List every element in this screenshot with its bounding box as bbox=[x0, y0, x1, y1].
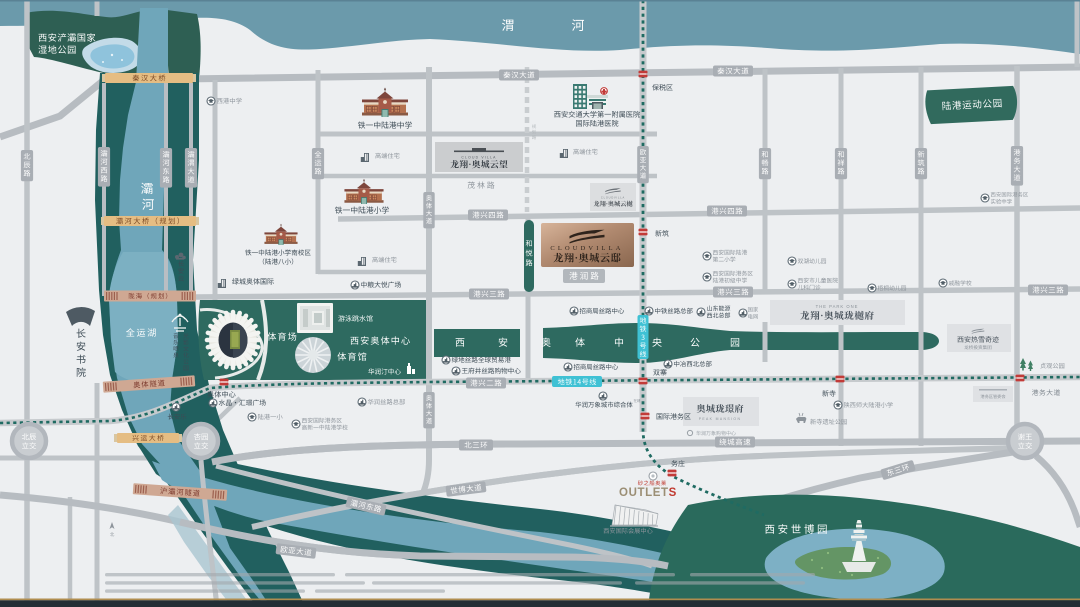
svg-text:THE PARK ONE: THE PARK ONE bbox=[816, 304, 859, 309]
svg-text:CLOUDVILLA: CLOUDVILLA bbox=[601, 196, 625, 200]
svg-text:CLOUD VILLA: CLOUD VILLA bbox=[461, 156, 496, 160]
svg-text:PEAK MANSION: PEAK MANSION bbox=[699, 417, 742, 421]
svg-text:OUTLETS: OUTLETS bbox=[619, 487, 677, 499]
svg-text:CLOUDVILLA: CLOUDVILLA bbox=[550, 245, 623, 252]
